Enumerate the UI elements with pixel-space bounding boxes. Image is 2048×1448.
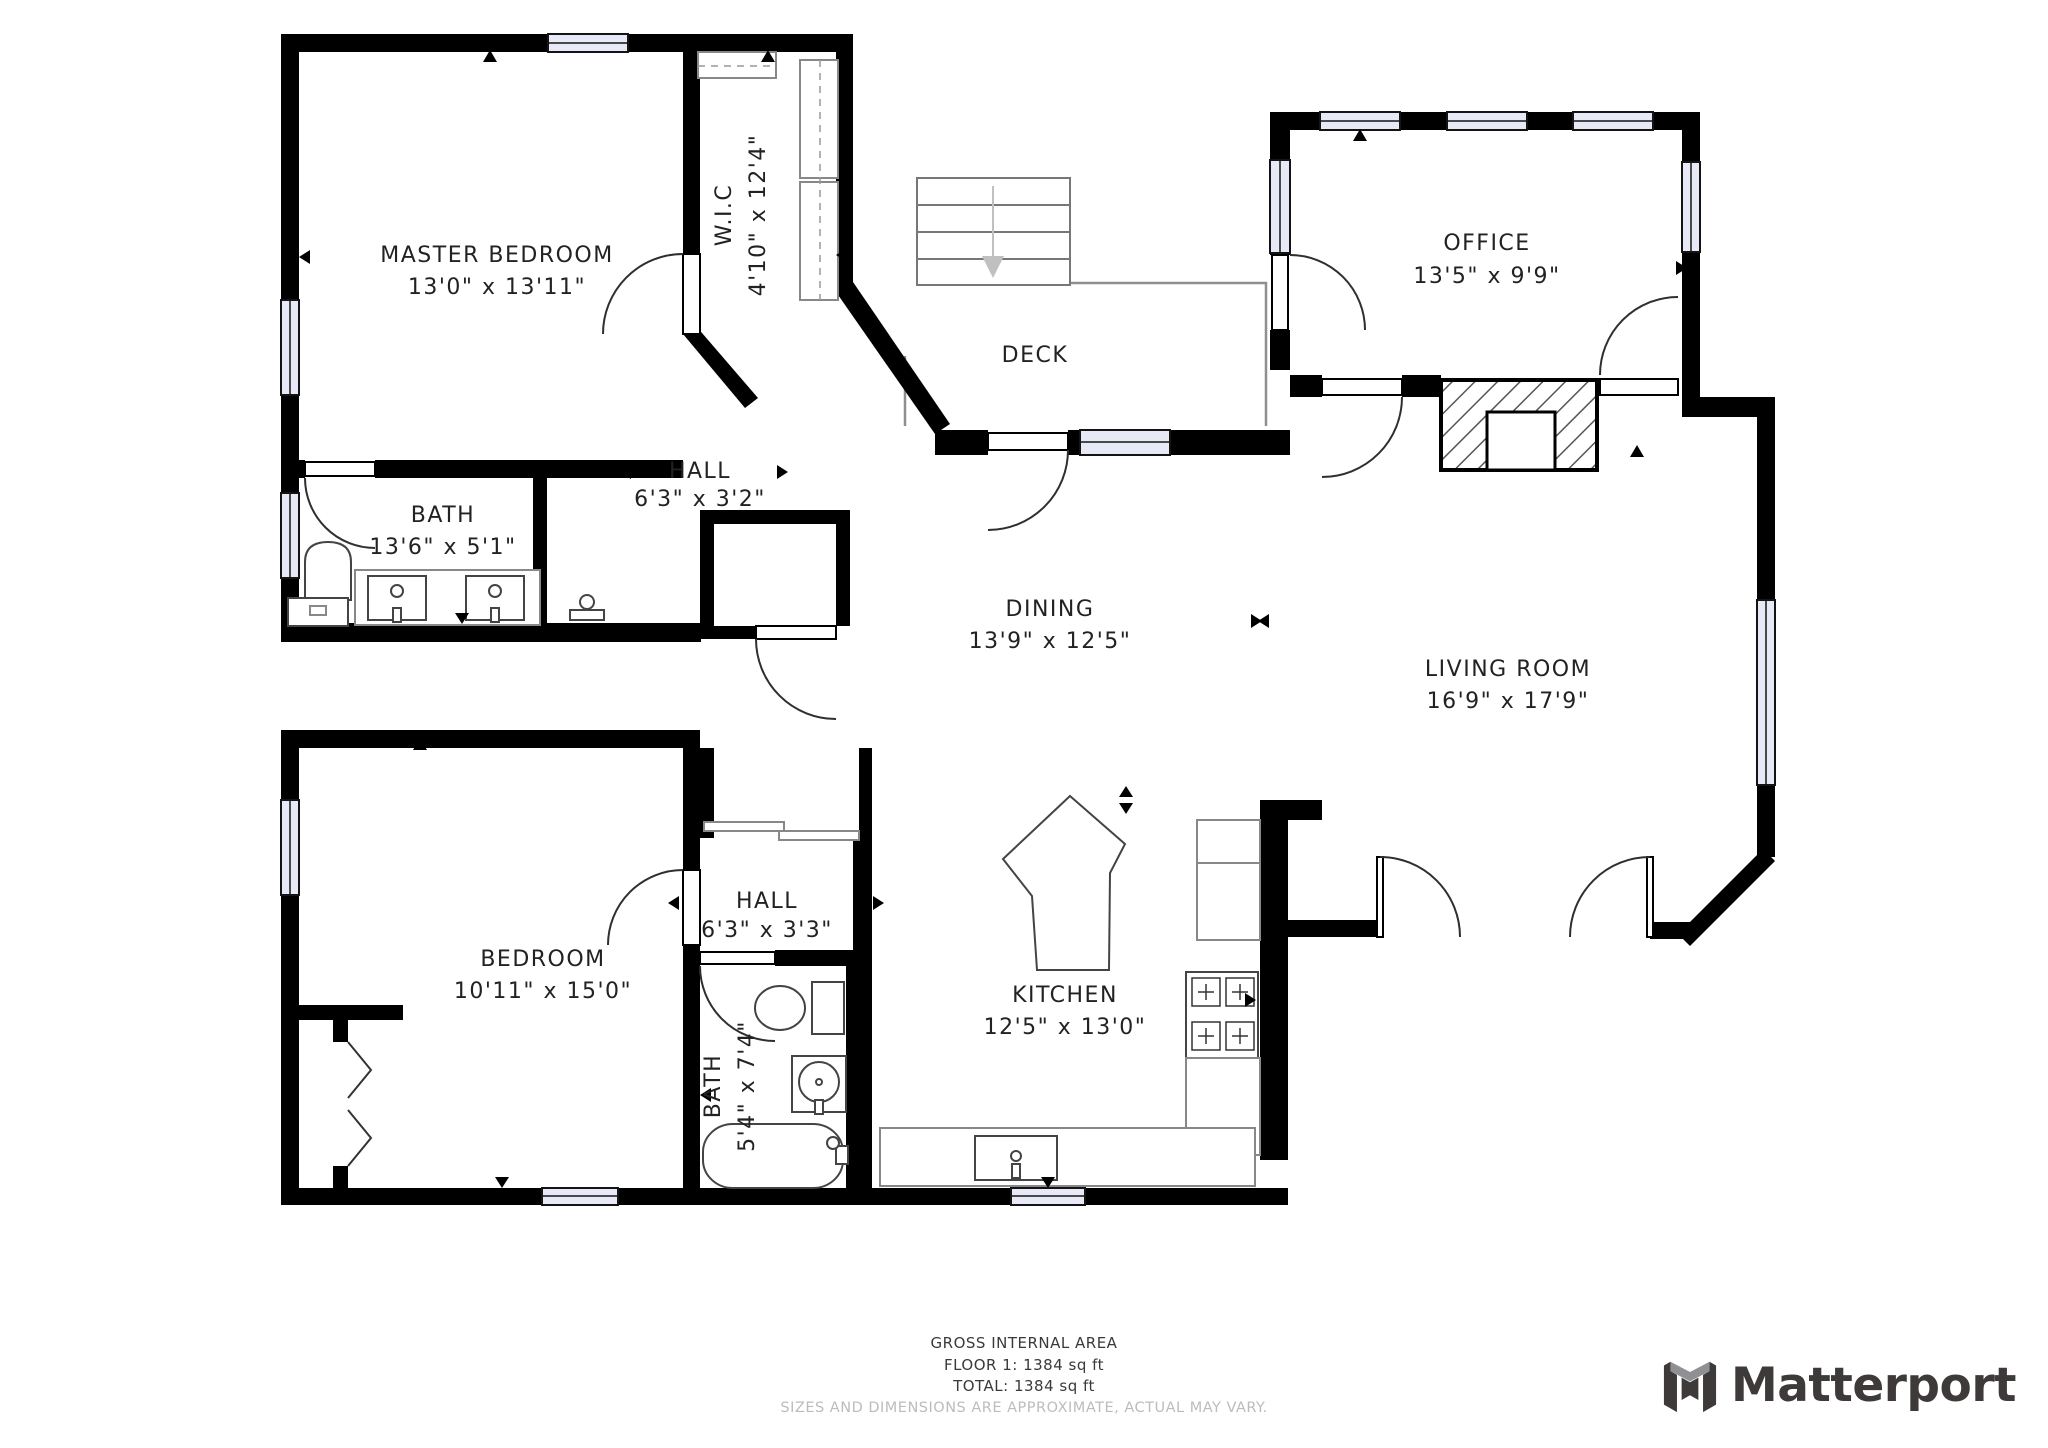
door <box>1600 297 1678 395</box>
room-dim-bath-master: 13'6" x 5'1" <box>369 535 516 560</box>
gross-area-label: GROSS INTERNAL AREA <box>0 1333 2048 1355</box>
window <box>1447 112 1527 130</box>
deck-stairs <box>917 178 1070 285</box>
room-name-bedroom: BEDROOM <box>480 947 605 972</box>
kitchen-sink <box>975 1136 1057 1180</box>
room-labels: MASTER BEDROOM 13'0" x 13'11" W.I.C 4'10… <box>369 134 1591 1152</box>
room-dim-bath-lower: 5'4" x 7'4" <box>735 1020 760 1152</box>
room-dim-kitchen: 12'5" x 13'0" <box>984 1015 1147 1040</box>
sink <box>368 576 426 622</box>
room-name-bath-lower: BATH <box>701 1054 726 1118</box>
window <box>1011 1188 1085 1205</box>
window <box>1320 112 1400 130</box>
window <box>542 1188 618 1205</box>
door <box>756 626 836 719</box>
toilet <box>755 982 844 1034</box>
room-dim-dining: 13'9" x 12'5" <box>969 629 1132 654</box>
window <box>1573 112 1653 130</box>
room-dim-living-room: 16'9" x 17'9" <box>1427 689 1590 714</box>
room-name-deck: DECK <box>1002 343 1069 368</box>
room-dim-hall-lower: 6'3" x 3'3" <box>701 918 833 943</box>
door <box>1377 857 1460 937</box>
door <box>1322 379 1402 477</box>
kitchen-island <box>1003 796 1125 970</box>
deck-outline <box>905 178 1266 426</box>
matterport-branding: Matterport <box>1661 1358 2016 1413</box>
window <box>281 300 299 395</box>
room-dim-bedroom: 10'11" x 15'0" <box>454 979 632 1004</box>
sink <box>792 1056 846 1114</box>
room-name-hall-upper: HALL <box>669 459 731 484</box>
room-name-bath-master: BATH <box>411 503 475 528</box>
sliding-door <box>704 822 859 840</box>
sink <box>466 576 524 622</box>
door <box>603 254 700 334</box>
matterport-wordmark: Matterport <box>1731 1358 2016 1413</box>
room-dim-wic: 4'10" x 12'4" <box>746 134 771 297</box>
room-dim-hall-upper: 6'3" x 3'2" <box>634 487 766 512</box>
room-name-kitchen: KITCHEN <box>1012 983 1118 1008</box>
door <box>988 433 1068 530</box>
room-name-dining: DINING <box>1006 597 1095 622</box>
fireplace <box>1441 380 1597 470</box>
window <box>1682 162 1700 252</box>
door <box>1570 857 1653 937</box>
window <box>1080 430 1170 455</box>
room-dim-master-bedroom: 13'0" x 13'11" <box>408 275 586 300</box>
floorplan-svg: MASTER BEDROOM 13'0" x 13'11" W.I.C 4'10… <box>0 0 2048 1448</box>
window <box>281 800 299 895</box>
window <box>1270 160 1290 253</box>
window <box>281 493 299 578</box>
window <box>548 34 628 52</box>
door <box>608 870 700 945</box>
faucet-fixture <box>570 595 604 620</box>
room-name-master-bedroom: MASTER BEDROOM <box>380 243 613 268</box>
room-name-wic: W.I.C <box>712 184 737 247</box>
stove <box>1186 972 1258 1058</box>
bifold-door <box>348 1042 371 1166</box>
matterport-logo-icon <box>1661 1359 1719 1413</box>
room-dim-office: 13'5" x 9'9" <box>1413 264 1560 289</box>
bathtub <box>703 1124 848 1188</box>
door <box>1272 255 1365 330</box>
room-name-living-room: LIVING ROOM <box>1425 657 1591 682</box>
room-name-office: OFFICE <box>1443 231 1530 256</box>
floorplan-canvas: MASTER BEDROOM 13'0" x 13'11" W.I.C 4'10… <box>0 0 2048 1448</box>
window <box>1757 600 1775 785</box>
room-name-hall-lower: HALL <box>736 889 798 914</box>
door <box>305 462 375 548</box>
